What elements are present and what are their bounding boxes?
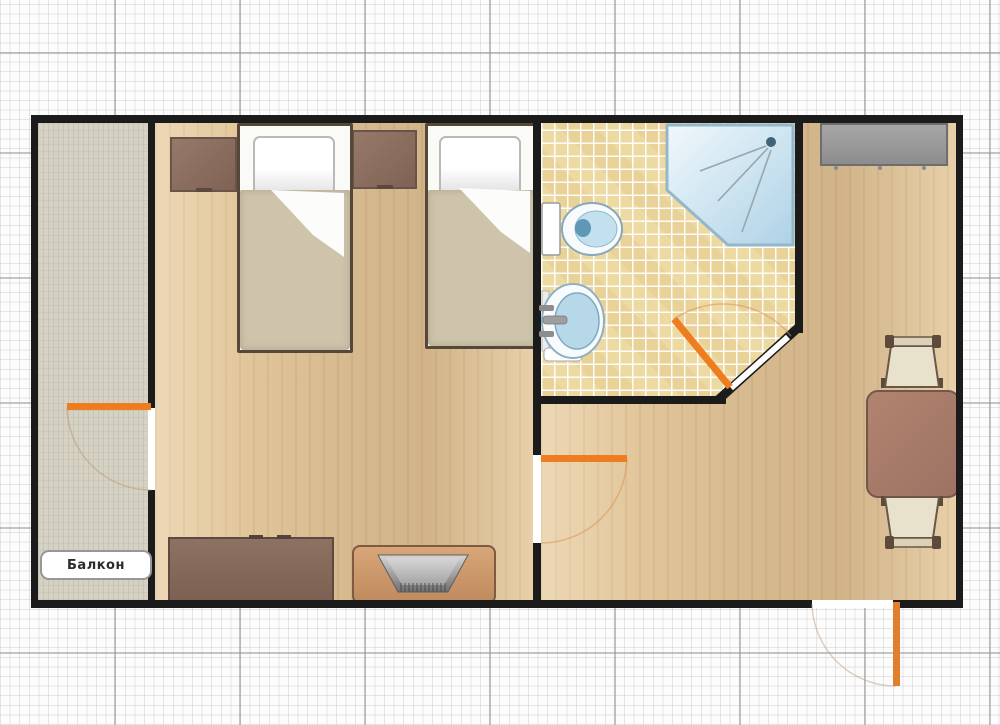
room-divider-door-opening (533, 455, 541, 543)
tv-stand (352, 545, 496, 604)
nightstand-handle (377, 185, 393, 189)
wall-left (31, 115, 38, 608)
balcony-label: Балкон (40, 550, 152, 580)
entrance-door (812, 602, 900, 686)
wall-balcony-divider (148, 115, 155, 608)
floor-plan-page: { "plan": { "balcony_label": "Балкон", "… (0, 0, 1000, 725)
dresser (168, 537, 334, 602)
nightstand-2 (352, 130, 417, 189)
blanket (240, 190, 350, 350)
wardrobe (820, 123, 948, 166)
bed-2 (425, 123, 539, 349)
balcony-floor (38, 123, 148, 600)
balcony-door-opening (148, 408, 155, 490)
wall-bathroom-right (795, 115, 803, 333)
entrance-door-opening (812, 600, 893, 608)
bed-1 (237, 123, 353, 353)
balcony-label-text: Балкон (67, 558, 125, 573)
wall-right (956, 115, 963, 608)
wall-bathroom-bottom (533, 396, 726, 404)
blanket (428, 190, 536, 346)
nightstand-1 (170, 137, 237, 192)
wall-top (31, 115, 963, 123)
nightstand-handle (196, 188, 212, 192)
floor-plan: Балкон (31, 115, 963, 608)
dining-table (866, 390, 960, 498)
